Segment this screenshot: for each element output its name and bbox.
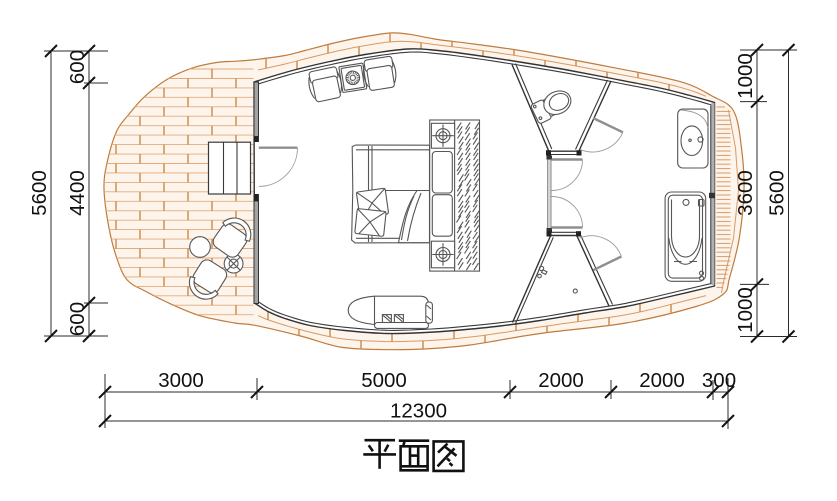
svg-text:2000: 2000	[639, 369, 685, 392]
svg-text:3600: 3600	[734, 170, 757, 216]
svg-text:5000: 5000	[361, 369, 407, 392]
svg-text:600: 600	[66, 50, 89, 84]
svg-text:5600: 5600	[28, 170, 51, 216]
svg-text:600: 600	[66, 302, 89, 336]
svg-text:300: 300	[702, 369, 736, 392]
svg-text:1000: 1000	[734, 53, 757, 99]
svg-text:12300: 12300	[390, 400, 447, 423]
svg-text:2000: 2000	[538, 369, 584, 392]
svg-text:5600: 5600	[766, 170, 789, 216]
svg-text:3000: 3000	[158, 369, 204, 392]
svg-text:1000: 1000	[734, 287, 757, 333]
svg-text:4400: 4400	[66, 170, 89, 216]
